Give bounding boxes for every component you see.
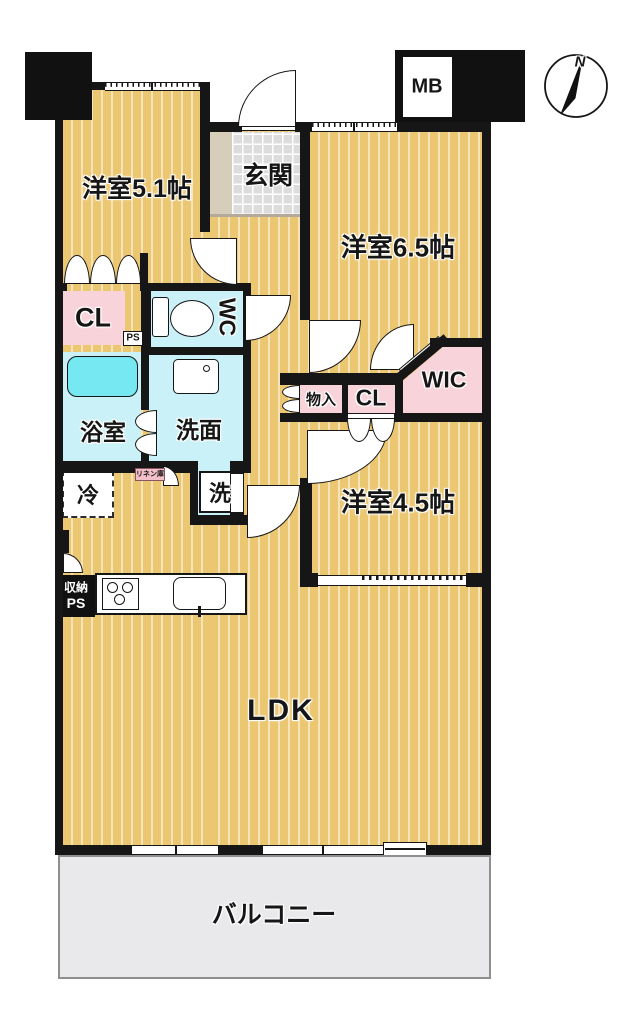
balcony-window-1-mullion <box>175 845 177 855</box>
wall-hall-6-5-divider <box>300 122 310 320</box>
label-linen-closet: リネン庫 <box>136 469 164 479</box>
wall-entrance-top-left <box>200 122 242 132</box>
wall-cl-doors-end <box>140 253 148 285</box>
wall-cl-row-top-left <box>55 283 67 291</box>
wall-4-5-bottom-right <box>466 573 491 587</box>
label-fridge: 冷 <box>77 478 99 510</box>
wall-4-5-bottom-left <box>300 573 318 587</box>
label-walk-in-closet: WIC <box>422 367 467 394</box>
entrance-hall-strip <box>210 132 232 217</box>
label-toilet: WC <box>214 298 241 336</box>
wall-cl2-wic-divider <box>395 378 403 413</box>
floor-plan: N 洋室5.1帖 玄関 洋室6.5帖 CL PS WC 浴室 洗面 洗 冷 リネ… <box>0 0 644 1024</box>
wall-bath-bottom <box>55 461 197 473</box>
label-bedroom-5-1: 洋室5.1帖 <box>82 169 192 205</box>
wall-wash-jog <box>230 461 251 473</box>
wall-wc-bottom <box>141 347 251 355</box>
stove-burner-3 <box>114 594 125 605</box>
exterior-block <box>25 52 92 120</box>
label-balcony: バルコニー <box>212 895 337 931</box>
label-storage-hall: 収納 <box>64 579 88 596</box>
wall-wic-top <box>430 338 490 347</box>
label-closet-2: CL <box>356 385 387 412</box>
label-storage-small: 物入 <box>306 389 336 410</box>
label-washroom: 洗面 <box>176 411 222 445</box>
wall-5-1-right <box>200 82 210 232</box>
toilet-tank <box>152 297 169 337</box>
entrance-door-swing <box>238 70 296 127</box>
label-pipe-space-2: PS <box>67 595 86 611</box>
label-bathroom: 浴室 <box>80 413 126 447</box>
compass-north-label: N <box>575 54 586 71</box>
label-pipe-space-1: PS <box>126 333 139 344</box>
partition-4-5-hatch <box>362 576 465 580</box>
washbasin-drain <box>203 365 210 372</box>
stove-burner-2 <box>122 582 133 593</box>
entrance-step-line <box>210 214 303 217</box>
washbasin <box>173 359 219 394</box>
wall-right <box>482 122 491 855</box>
label-bedroom-4-5: 洋室4.5帖 <box>341 483 455 520</box>
label-entrance: 玄関 <box>243 156 293 192</box>
label-closet-1: CL <box>75 303 111 334</box>
window-5-1-mullion <box>151 82 153 91</box>
toilet-bowl <box>170 300 214 337</box>
wall-wash-door-stop <box>230 513 244 525</box>
wall-bottom-1 <box>55 845 132 855</box>
balcony-window-3-rail <box>385 848 425 850</box>
wall-monoire-cl-divider <box>342 385 348 413</box>
label-bedroom-6-5: 洋室6.5帖 <box>341 228 455 265</box>
label-meter-box: MB <box>411 76 442 99</box>
label-washer: 洗 <box>209 476 231 508</box>
balcony-window-2-mullion <box>322 845 324 855</box>
stove-burner-1 <box>107 582 118 593</box>
wall-closet-row-bottom-right <box>393 413 490 422</box>
washroom-sliding-door <box>230 473 244 513</box>
bathtub <box>67 356 138 397</box>
wall-closet-row-top <box>280 373 402 385</box>
kitchen-faucet <box>198 606 201 617</box>
wall-kitchen-stub <box>63 530 69 553</box>
wall-bath-wash-divider <box>141 355 149 410</box>
wall-bottom-3 <box>427 845 491 855</box>
window-6-5-mullion <box>353 122 355 132</box>
label-ldk: LDK <box>247 694 315 728</box>
wall-4-5-left <box>300 478 312 587</box>
wall-closet-row-bottom-left <box>280 413 347 422</box>
wall-bottom-2 <box>218 845 263 855</box>
